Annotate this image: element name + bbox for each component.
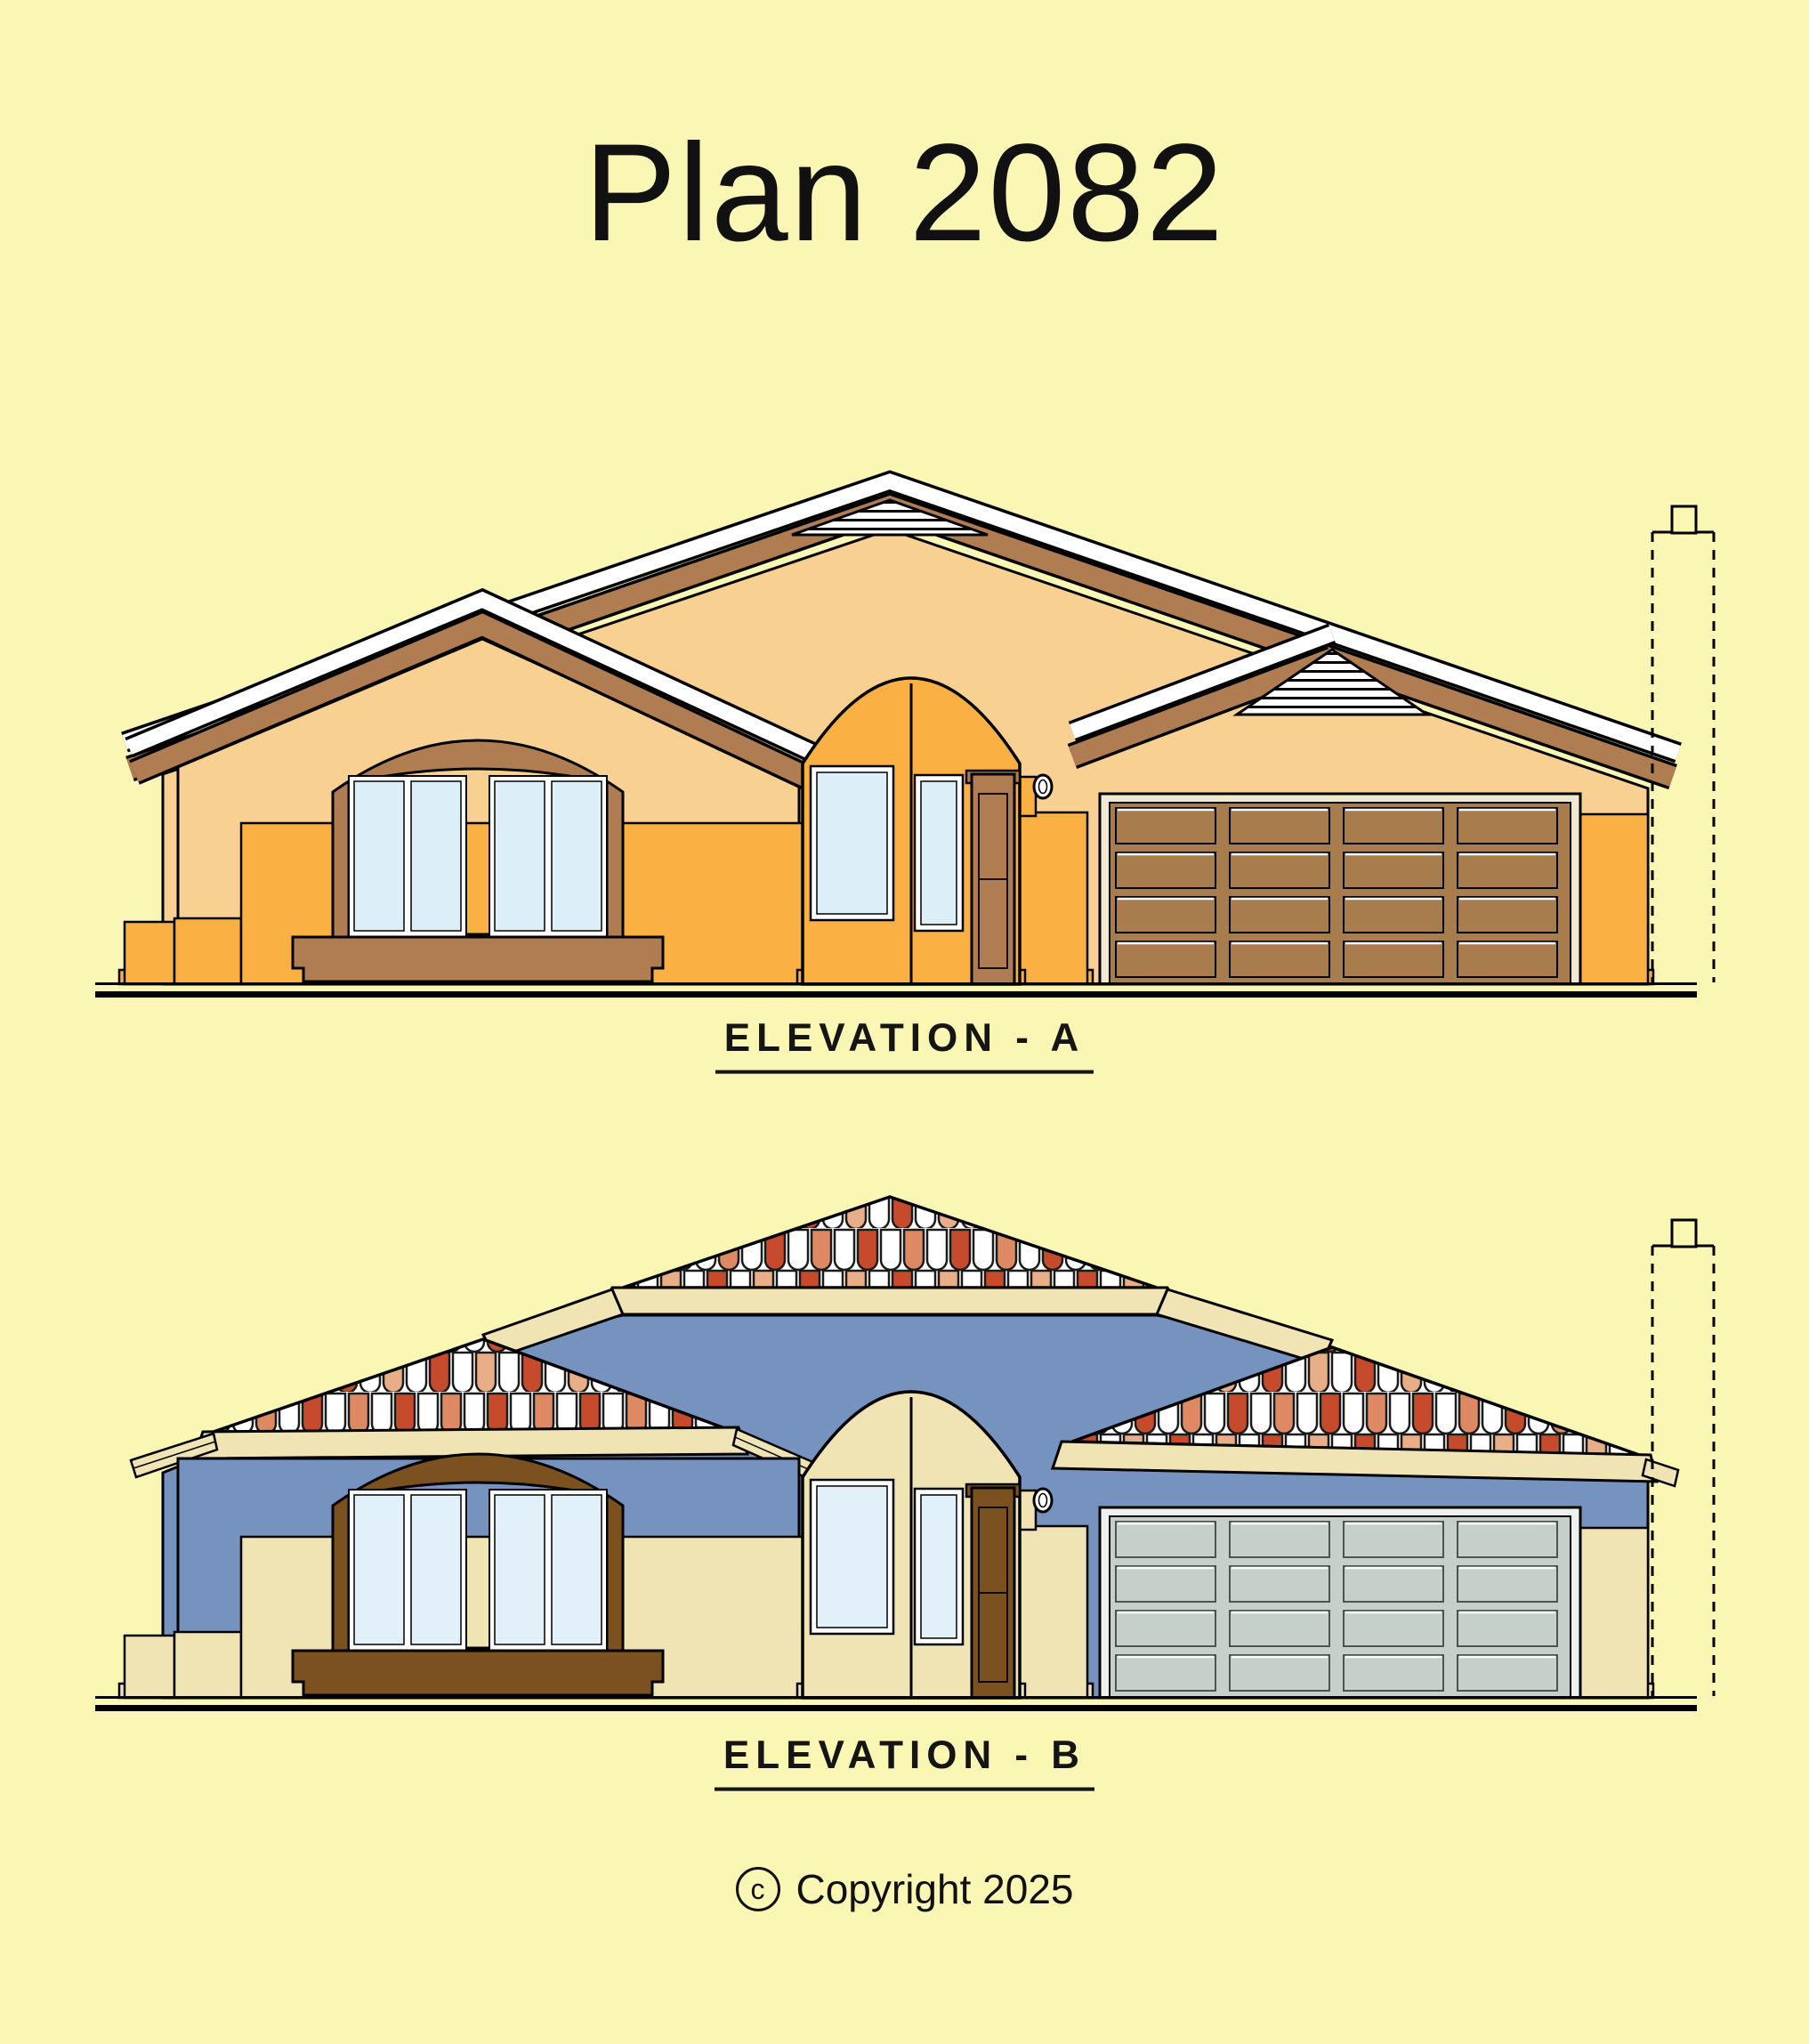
ground-line [95, 982, 1697, 998]
elevation-a-caption-text: ELEVATION - A [715, 1015, 1094, 1073]
garage-door [1100, 794, 1580, 984]
elevation-a-caption: ELEVATION - A [0, 1016, 1809, 1073]
page-title: Plan 2082 [0, 114, 1809, 273]
copyright-line: cCopyright 2025 [0, 1862, 1809, 1913]
entry-door [966, 1484, 1020, 1698]
entry-sidelight-window [811, 766, 893, 920]
elevation-b-caption: ELEVATION - B [0, 1733, 1809, 1790]
entry-sidelight-window [811, 1480, 893, 1634]
elevation-b-drawing [0, 1130, 1809, 1753]
chimney [1652, 1220, 1714, 1696]
copyright-text: Copyright 2025 [796, 1866, 1074, 1912]
elevation-b-caption-text: ELEVATION - B [715, 1733, 1094, 1790]
plan-sheet: Plan 2082 [0, 0, 1809, 2044]
porch-light-icon [1034, 775, 1052, 798]
entry-door [966, 771, 1020, 984]
entry-narrow-window [915, 775, 963, 931]
porch-light-icon [1034, 1489, 1052, 1512]
copyright-symbol-icon: c [736, 1867, 780, 1911]
ground-line [95, 1696, 1697, 1711]
entry-narrow-window [915, 1489, 963, 1644]
elevation-a-drawing [0, 418, 1809, 1041]
garage-door [1100, 1507, 1580, 1698]
planter-box [293, 1651, 663, 1695]
planter-box [293, 937, 663, 982]
